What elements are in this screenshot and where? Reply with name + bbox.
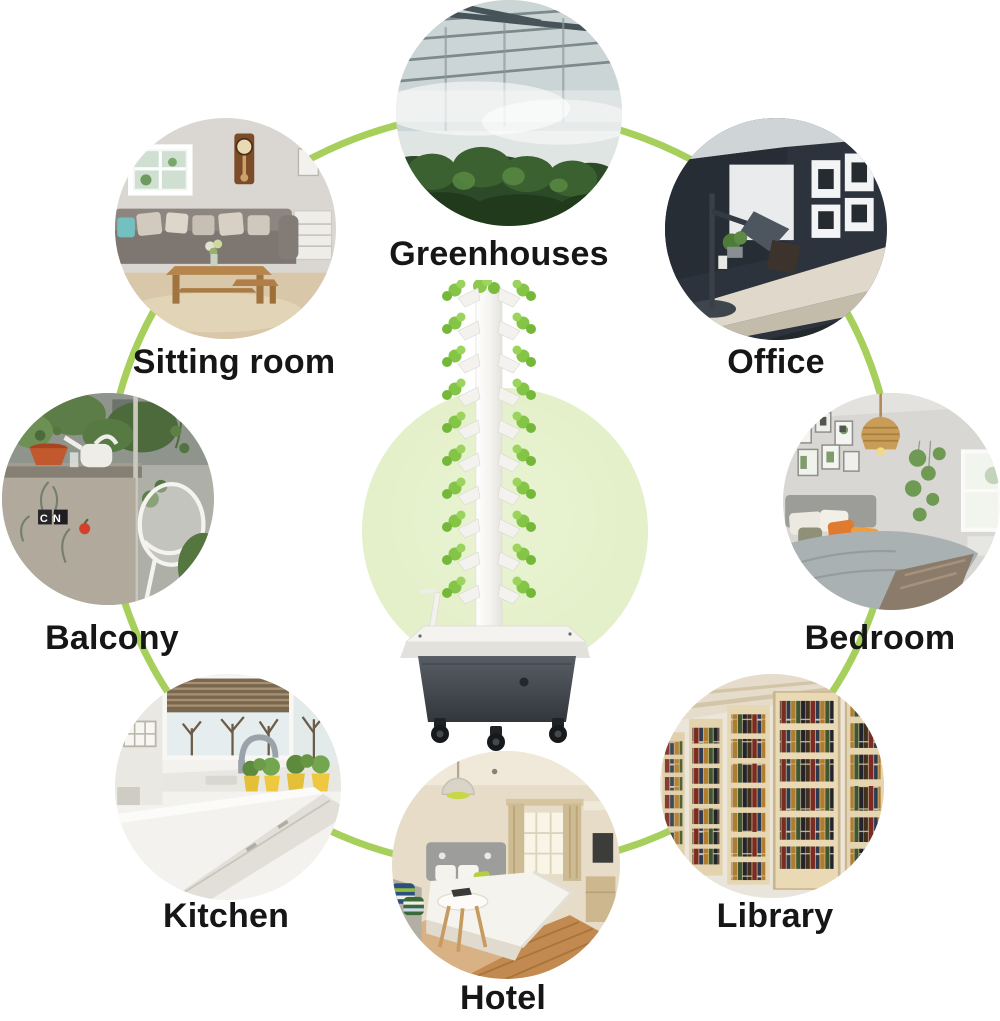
balcony-illustration: CN	[2, 393, 214, 605]
kitchen-photo	[115, 674, 341, 900]
library-illustration	[660, 674, 884, 898]
kitchen-label: Kitchen	[163, 899, 289, 933]
cn-letter-blocks: CN	[40, 513, 66, 525]
library-photo	[660, 674, 884, 898]
office-illustration	[665, 118, 887, 340]
hotel-label: Hotel	[460, 981, 546, 1015]
hydroponic-tower-photo	[372, 280, 617, 765]
balcony-label: Balcony	[45, 621, 179, 655]
greenhouse-interior-illustration	[396, 0, 622, 226]
infographic-canvas: CN	[0, 0, 1000, 1021]
office-photo	[665, 118, 887, 340]
wall-clock	[234, 133, 254, 184]
sitting-room-label: Sitting room	[133, 345, 336, 379]
kitchen-illustration	[115, 674, 341, 900]
caster-wheels	[431, 718, 567, 751]
greenhouses-photo	[396, 0, 622, 226]
bedroom-photo	[783, 393, 1000, 610]
sitting-room-illustration	[115, 118, 336, 339]
bedroom-illustration	[783, 393, 1000, 610]
balcony-photo: CN	[2, 393, 214, 605]
hotel-room-illustration	[392, 751, 620, 979]
library-label: Library	[717, 899, 834, 933]
bedroom-label: Bedroom	[805, 621, 956, 655]
hotel-photo	[392, 751, 620, 979]
sitting-room-photo	[115, 118, 336, 339]
greenhouses-label: Greenhouses	[389, 237, 609, 271]
office-label: Office	[727, 345, 825, 379]
